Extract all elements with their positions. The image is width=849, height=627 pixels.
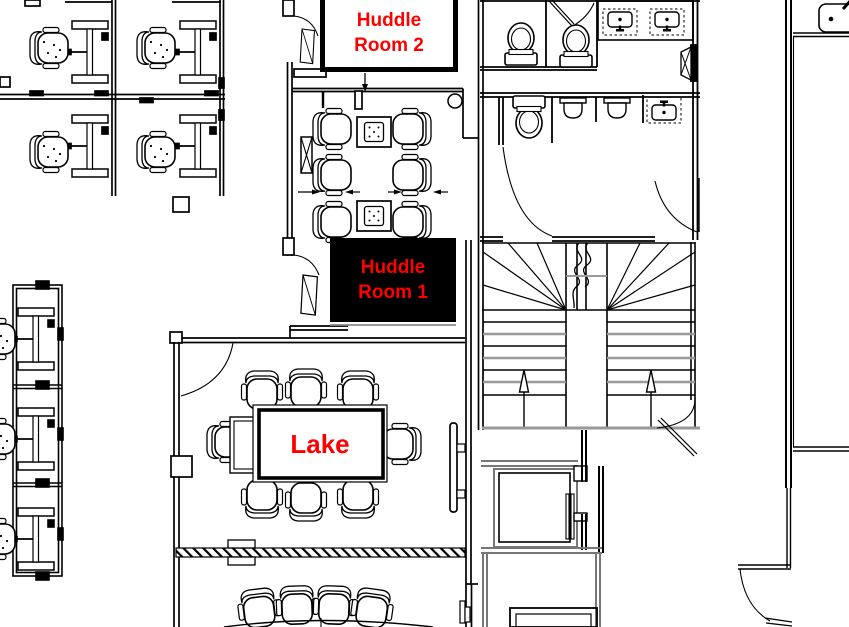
huddle-table bbox=[357, 201, 391, 231]
door-leaf bbox=[298, 28, 317, 64]
open-meeting-area bbox=[298, 94, 462, 243]
sink bbox=[819, 0, 849, 32]
right-walls bbox=[738, 0, 849, 626]
fountain bbox=[691, 45, 697, 81]
conference-chair bbox=[286, 483, 327, 521]
room-huddle-2-label-line2: Room 2 bbox=[354, 33, 424, 58]
conference-chair bbox=[286, 369, 327, 407]
room-huddle-1-selected[interactable]: Huddle Room 1 bbox=[330, 238, 456, 322]
office-chair bbox=[137, 132, 175, 173]
bottom-seating bbox=[224, 585, 433, 627]
door-arc bbox=[655, 181, 697, 232]
room-huddle-1-label-line1: Huddle bbox=[361, 255, 425, 280]
room-lake[interactable]: Lake bbox=[256, 409, 384, 478]
door-arc bbox=[657, 400, 695, 428]
toilet bbox=[560, 25, 592, 67]
huddle-table bbox=[357, 117, 391, 147]
up-arrow bbox=[647, 370, 656, 428]
office-chair bbox=[137, 28, 175, 69]
conference-chair bbox=[383, 424, 421, 465]
sink bbox=[647, 97, 681, 123]
bathrooms bbox=[480, 0, 700, 241]
door-arc bbox=[573, 3, 594, 26]
toilet bbox=[513, 96, 545, 138]
door-arc bbox=[294, 255, 319, 275]
sink bbox=[603, 9, 637, 35]
elevator bbox=[481, 430, 603, 627]
office-chair bbox=[393, 202, 431, 243]
office-chair bbox=[276, 585, 318, 624]
door-arc bbox=[503, 147, 552, 236]
conference-chair bbox=[242, 480, 283, 518]
toilet bbox=[505, 23, 537, 65]
room-huddle-2-label-line1: Huddle bbox=[357, 8, 421, 33]
office-chair bbox=[313, 202, 351, 243]
elevator-cab bbox=[499, 473, 570, 542]
room-huddle-1-label-line2: Room 1 bbox=[358, 280, 428, 305]
conference-chair bbox=[338, 480, 379, 518]
stairwell bbox=[482, 242, 700, 456]
office-chair bbox=[30, 132, 68, 173]
office-chair bbox=[236, 587, 281, 627]
floor-plan: Huddle Room 2 Huddle Room 1 Lake bbox=[0, 0, 849, 627]
conference-chair bbox=[242, 371, 283, 409]
door-arc bbox=[181, 343, 233, 396]
room-huddle-2[interactable]: Huddle Room 2 bbox=[320, 0, 458, 72]
workstation-pods-top-left bbox=[0, 0, 225, 212]
door-arc bbox=[740, 569, 770, 621]
urinal bbox=[560, 98, 586, 118]
office-chair bbox=[313, 585, 355, 624]
column bbox=[448, 94, 462, 108]
urinal bbox=[604, 98, 630, 118]
door-leaf bbox=[298, 274, 320, 316]
sink bbox=[650, 9, 684, 35]
office-chair bbox=[393, 155, 431, 196]
workstation-column-left bbox=[0, 281, 63, 580]
hatched-wall bbox=[176, 548, 465, 557]
office-chair bbox=[393, 109, 431, 150]
up-arrow bbox=[520, 370, 529, 428]
room-lake-label: Lake bbox=[290, 431, 349, 457]
office-chair bbox=[30, 28, 68, 69]
office-chair bbox=[313, 109, 351, 150]
conference-chair bbox=[338, 371, 379, 409]
stair-treads bbox=[483, 322, 695, 395]
wall-tv bbox=[450, 423, 457, 512]
office-chair bbox=[313, 155, 351, 196]
